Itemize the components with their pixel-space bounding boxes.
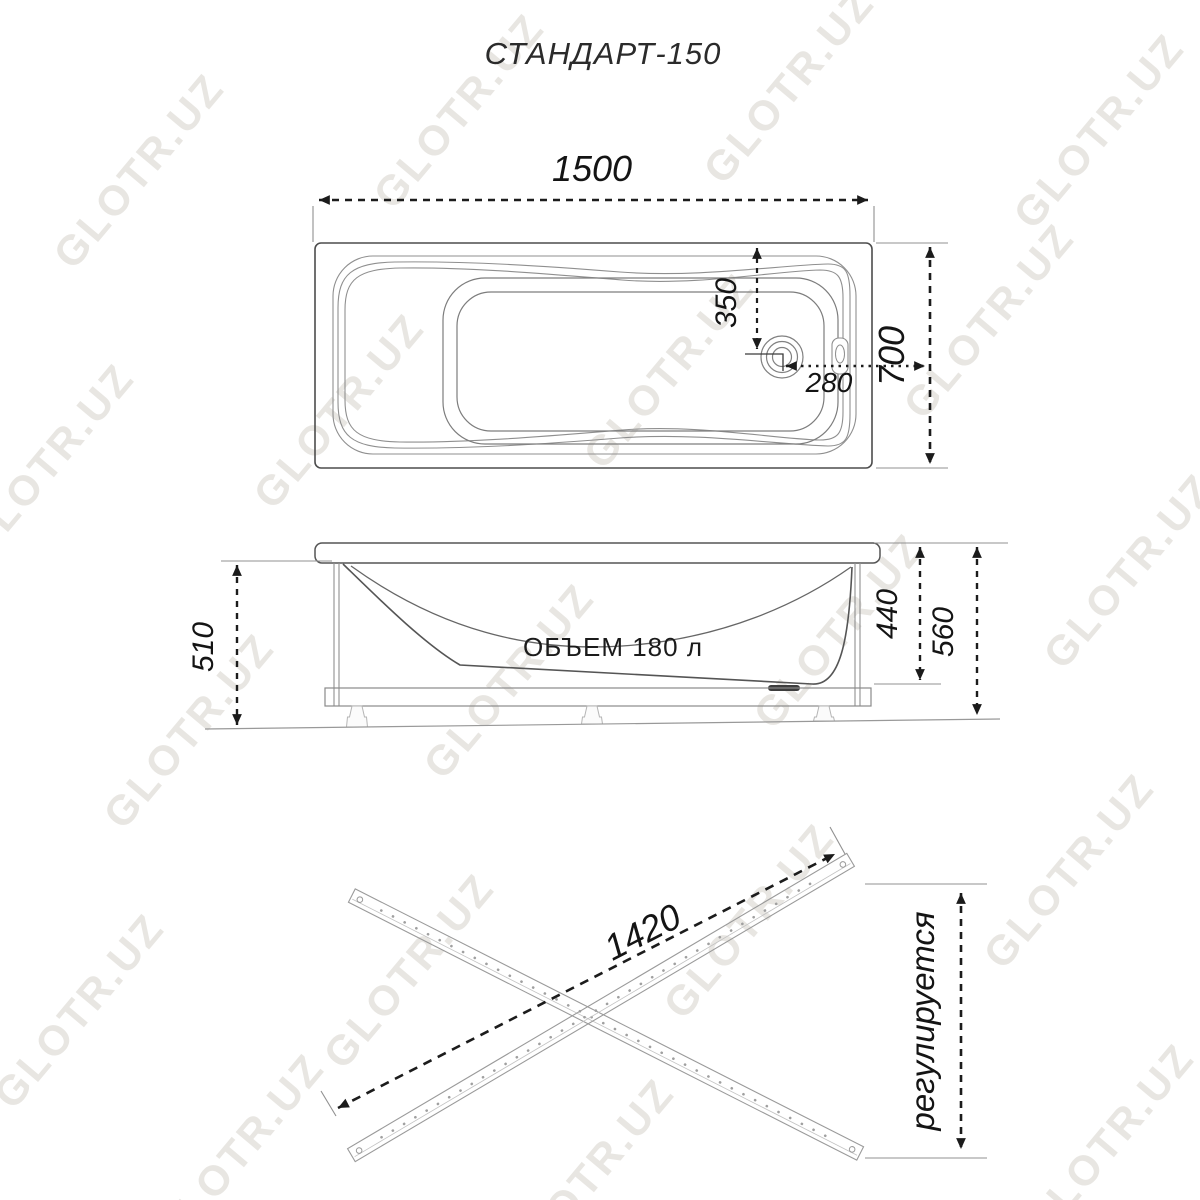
dim-label-440: 440 xyxy=(871,589,904,639)
watermark-text: GLOTR.UZ xyxy=(1034,464,1200,677)
page-title: СТАНДАРТ-150 xyxy=(485,36,722,71)
watermark-text: GLOTR.UZ xyxy=(494,1069,683,1200)
watermark-text: GLOTR.UZ xyxy=(0,354,144,567)
side-rim-bar xyxy=(315,543,880,563)
watermark-text: GLOTR.UZ xyxy=(414,574,603,787)
rail-end-hole xyxy=(848,1146,856,1154)
watermark-text: GLOTR.UZ xyxy=(1014,1034,1200,1200)
frame-leg xyxy=(582,706,603,724)
technical-drawing: GLOTR.UZ GLOTR.UZ GLOTR.UZ GLOTR.UZ GLOT… xyxy=(0,0,1200,1200)
dim-height-560: 560 xyxy=(927,547,977,715)
side-shell-outline xyxy=(343,564,852,684)
watermark-text: GLOTR.UZ xyxy=(974,764,1163,977)
drain-circle xyxy=(767,342,798,373)
dim-label-280: 280 xyxy=(805,367,853,398)
frame-leg xyxy=(347,706,368,727)
dim-label-1420: 1420 xyxy=(597,895,687,968)
watermark-text: GLOTR.UZ xyxy=(314,864,503,1077)
drain-circle xyxy=(761,336,803,378)
dim-label-adjustable: регулируется xyxy=(904,911,941,1131)
dim-label-560: 560 xyxy=(927,607,960,657)
dim-label-510: 510 xyxy=(187,622,220,672)
watermark-text: GLOTR.UZ xyxy=(654,814,843,1027)
dim-adjustable: регулируется xyxy=(865,884,987,1158)
drawing-page: GLOTR.UZ GLOTR.UZ GLOTR.UZ GLOTR.UZ GLOT… xyxy=(0,0,1200,1200)
volume-label: ОБЪЕМ 180 л xyxy=(523,632,703,662)
dim-label-700: 700 xyxy=(871,326,912,386)
top-view-rim-contour xyxy=(345,268,843,442)
watermark-text: GLOTR.UZ xyxy=(694,0,883,192)
drain xyxy=(761,336,803,378)
rail-end-hole xyxy=(355,1147,363,1155)
watermark-text: GLOTR.UZ xyxy=(144,1044,333,1200)
rail-end-hole xyxy=(356,896,364,904)
watermark-text: GLOTR.UZ xyxy=(1004,24,1193,237)
dim-label-350: 350 xyxy=(710,278,743,328)
dim-label-1500: 1500 xyxy=(552,148,632,189)
watermark-text: GLOTR.UZ xyxy=(894,214,1083,427)
rail-end-hole xyxy=(839,861,847,869)
watermark-text: GLOTR.UZ xyxy=(44,64,233,277)
watermark-text: GLOTR.UZ xyxy=(0,904,174,1117)
frame-leg xyxy=(814,706,835,721)
drain-circle xyxy=(773,348,792,367)
